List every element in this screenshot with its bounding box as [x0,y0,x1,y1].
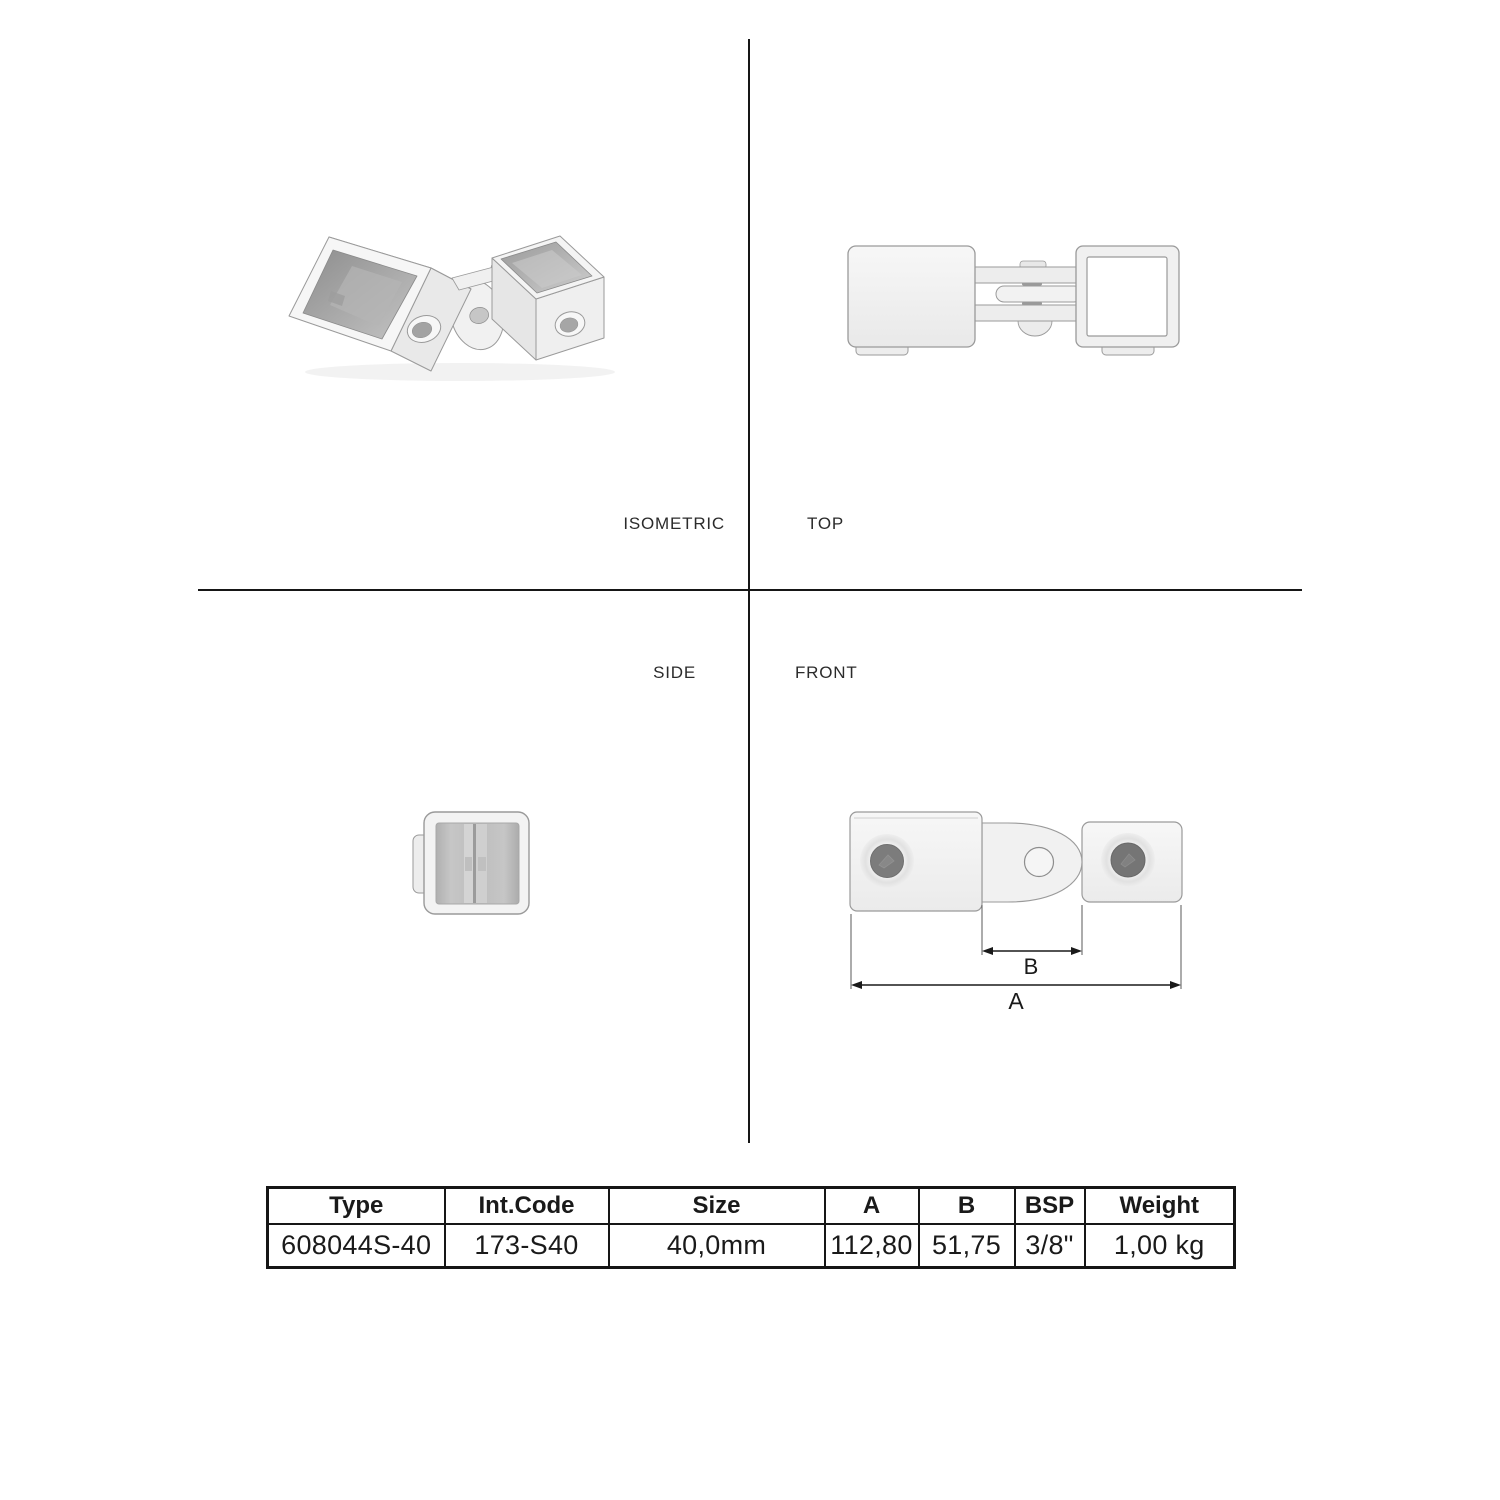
dimension-a-label: A [1008,988,1024,1014]
dimension-b: B [982,947,1082,979]
col-header-weight: Weight [1085,1188,1235,1224]
plate-mark-2 [478,857,486,871]
dimension-b-label: B [1024,954,1039,979]
spec-table-header-row: Type Int.Code Size A B BSP Weight [268,1188,1235,1224]
arrow-left [982,947,993,955]
left-socket-top [848,246,975,347]
cell-intcode: 173-S40 [445,1224,609,1268]
col-header-intcode: Int.Code [445,1188,609,1224]
right-socket [492,236,604,360]
col-header-type: Type [268,1188,445,1224]
cell-a: 112,80 [825,1224,919,1268]
left-socket [289,237,471,371]
fork-arm-upper [968,267,1080,283]
col-header-a: A [825,1188,919,1224]
extension-lines [851,905,1181,989]
cell-bsp: 3/8" [1015,1224,1085,1268]
hinge-plate-gap [473,824,476,903]
pin-gap-upper [1022,283,1042,286]
right-socket-opening [1087,257,1167,336]
front-view-drawing: B A [840,795,1200,1020]
front-view-label: FRONT [795,663,858,683]
arrow-right [1170,981,1181,989]
pin-gap-lower [1022,302,1042,305]
spec-table: Type Int.Code Size A B BSP Weight 608044… [266,1186,1236,1269]
isometric-view-drawing [275,210,655,390]
cell-type: 608044S-40 [268,1224,445,1268]
divider-horizontal-line [198,589,1302,591]
cell-weight: 1,00 kg [1085,1224,1235,1268]
top-view-label: TOP [807,514,844,534]
plate-mark-1 [465,857,472,871]
cell-size: 40,0mm [609,1224,825,1268]
fork-arm-lower [968,305,1080,321]
arrow-right [1071,947,1082,955]
shadow [305,363,615,381]
cell-b: 51,75 [919,1224,1015,1268]
isometric-view-label: ISOMETRIC [623,514,725,534]
col-header-size: Size [609,1188,825,1224]
hinge-pin-bottom [1018,321,1052,336]
spec-table-data-row: 608044S-40 173-S40 40,0mm 112,80 51,75 3… [268,1224,1235,1268]
arrow-left [851,981,862,989]
hinge-pin-front [1025,848,1054,877]
top-view-drawing [840,235,1200,365]
divider-vertical-line [748,39,750,1143]
drawing-sheet: ISOMETRIC TOP SIDE FRONT [0,0,1500,1500]
col-header-b: B [919,1188,1015,1224]
hinge-tongue [996,286,1082,302]
side-view-label: SIDE [653,663,696,683]
side-view-drawing [405,800,545,925]
col-header-bsp: BSP [1015,1188,1085,1224]
dimension-a: A [851,981,1181,1014]
